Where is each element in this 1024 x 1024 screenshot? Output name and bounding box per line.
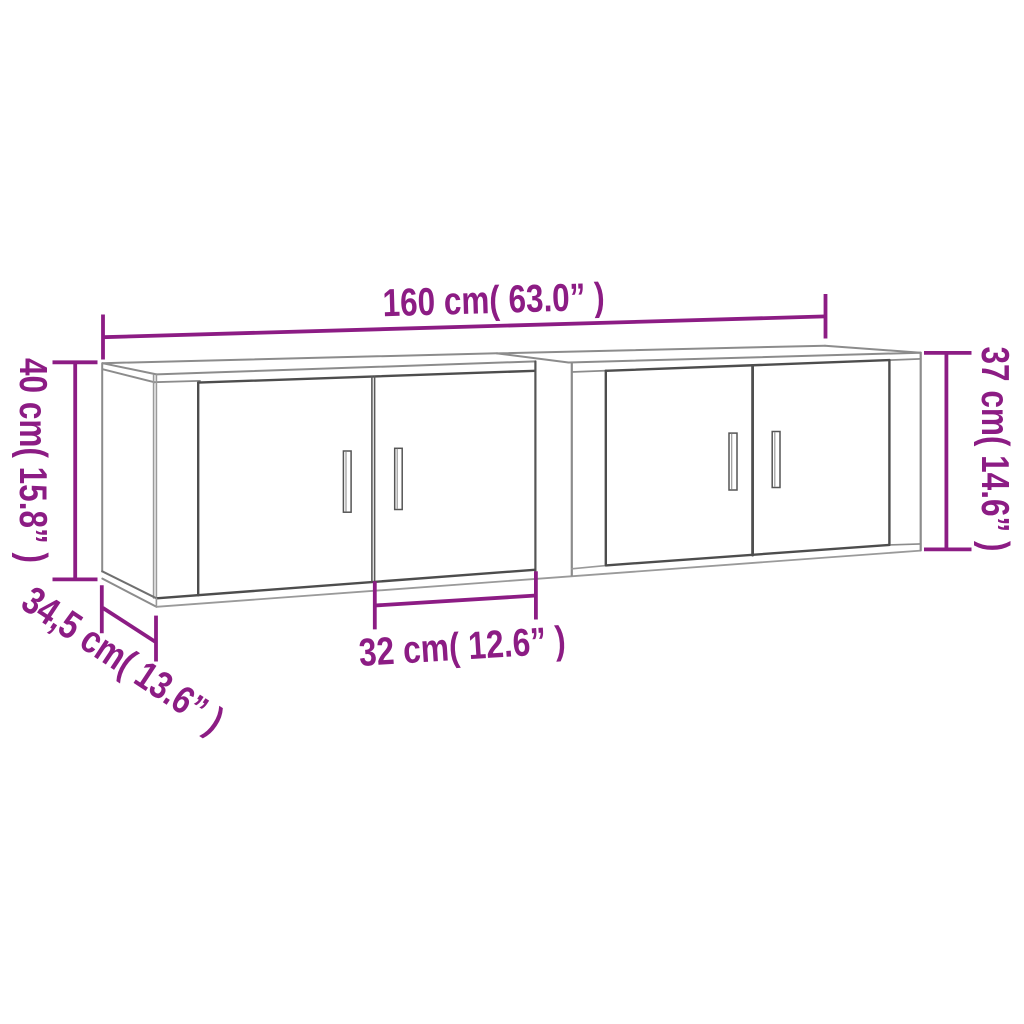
svg-text:40 cm( 15.8” ): 40 cm( 15.8” ) [11, 358, 54, 563]
svg-text:37 cm( 14.6” ): 37 cm( 14.6” ) [973, 347, 1016, 552]
svg-text:160 cm( 63.0” ): 160 cm( 63.0” ) [382, 276, 605, 326]
